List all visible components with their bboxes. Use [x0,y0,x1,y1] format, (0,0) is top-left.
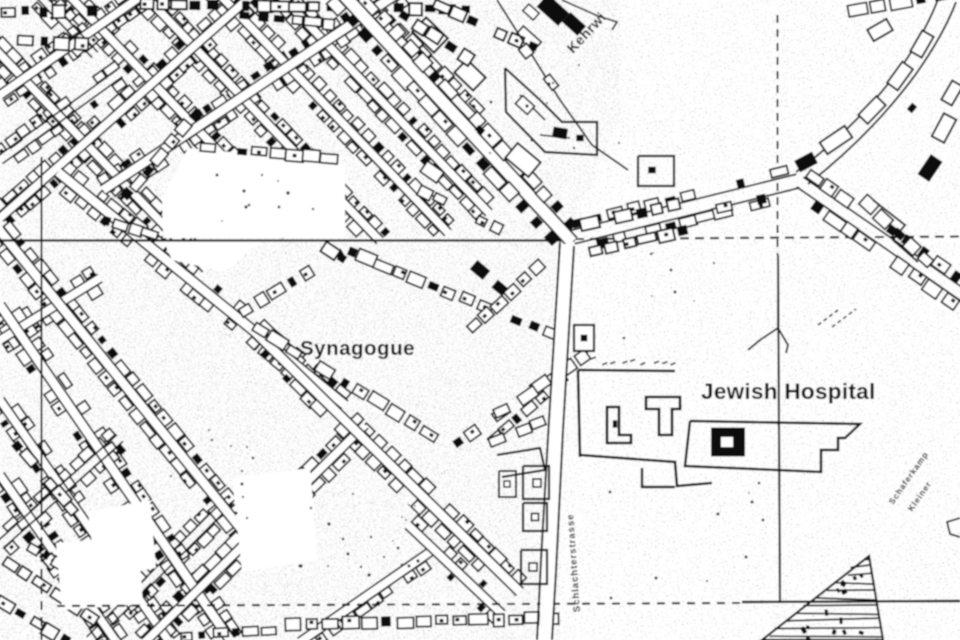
svg-text:Synagogue: Synagogue [300,337,415,360]
svg-text:Jewish Hospital: Jewish Hospital [701,379,876,404]
